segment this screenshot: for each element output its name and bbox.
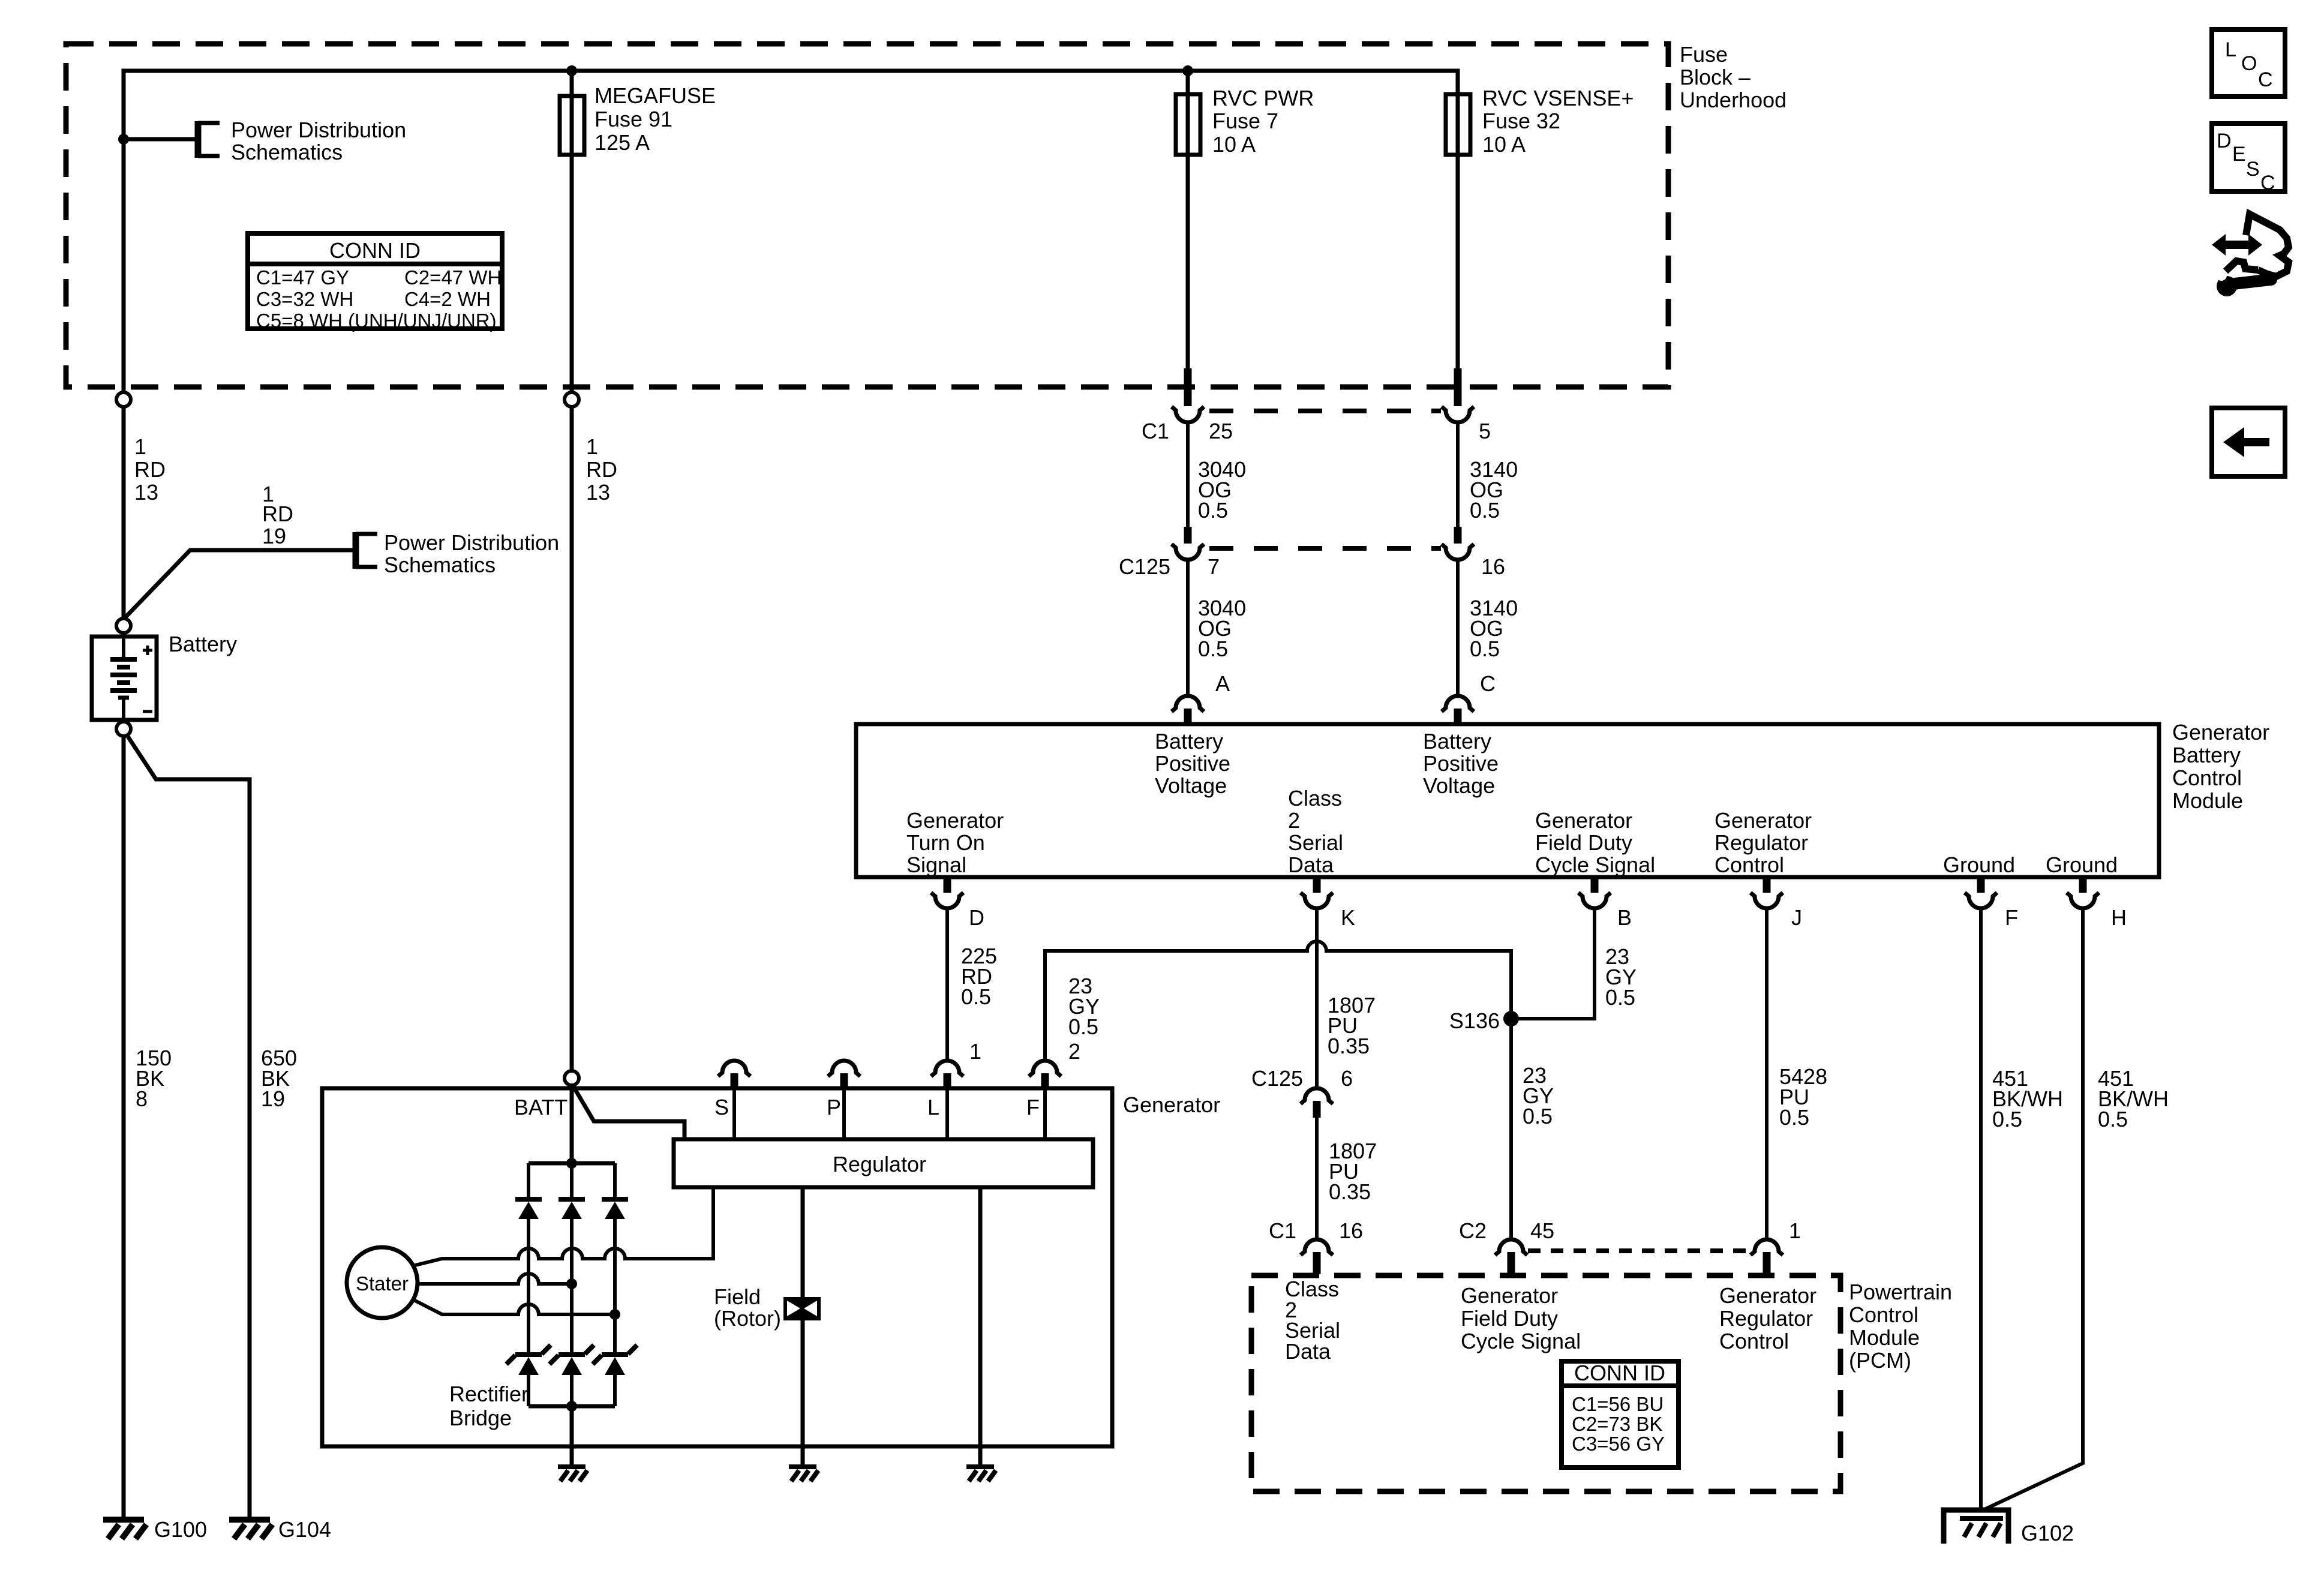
svg-text:C1: C1 (1142, 419, 1169, 443)
svg-text:Battery: Battery (1423, 729, 1491, 754)
svg-text:Power Distribution: Power Distribution (231, 118, 406, 142)
svg-text:Generator: Generator (1461, 1283, 1558, 1308)
svg-text:L: L (2225, 38, 2236, 61)
svg-text:Regulator: Regulator (1719, 1306, 1813, 1331)
svg-text:16: 16 (1339, 1218, 1363, 1243)
svg-text:G104: G104 (278, 1517, 331, 1542)
svg-text:Battery: Battery (2172, 743, 2241, 767)
svg-text:C4=2 WH: C4=2 WH (404, 288, 491, 310)
svg-text:RD: RD (134, 457, 166, 482)
svg-text:Positive: Positive (1155, 751, 1230, 776)
svg-text:13: 13 (134, 480, 158, 505)
svg-text:F: F (2005, 905, 2018, 930)
svg-text:C: C (1480, 671, 1496, 696)
svg-text:S: S (2246, 158, 2260, 181)
svg-text:45: 45 (1530, 1218, 1554, 1243)
svg-text:Generator: Generator (1535, 808, 1632, 833)
svg-text:C1=47 GY: C1=47 GY (256, 266, 349, 289)
svg-text:Generator: Generator (1719, 1283, 1816, 1308)
svg-text:Serial: Serial (1288, 830, 1343, 855)
svg-text:Schematics: Schematics (384, 553, 496, 577)
svg-text:H: H (2111, 905, 2127, 930)
svg-text:Field Duty: Field Duty (1461, 1306, 1558, 1331)
svg-text:Generator: Generator (2172, 720, 2269, 745)
svg-text:0.5: 0.5 (1992, 1107, 2022, 1131)
svg-text:25: 25 (1209, 419, 1233, 443)
svg-text:1: 1 (586, 434, 598, 459)
svg-text:0.5: 0.5 (1470, 637, 1500, 661)
svg-text:0.5: 0.5 (1198, 637, 1228, 661)
svg-text:(Rotor): (Rotor) (714, 1306, 781, 1331)
svg-text:Class: Class (1288, 786, 1342, 810)
svg-text:C2: C2 (1459, 1218, 1487, 1243)
svg-text:125 A: 125 A (594, 130, 650, 155)
svg-text:BATT: BATT (514, 1095, 568, 1119)
svg-text:RVC VSENSE+: RVC VSENSE+ (1482, 86, 1634, 110)
svg-text:10 A: 10 A (1212, 132, 1256, 157)
svg-text:0.5: 0.5 (1198, 498, 1228, 523)
svg-text:Regulator: Regulator (1715, 830, 1808, 855)
svg-text:Data: Data (1285, 1339, 1331, 1364)
svg-text:1: 1 (134, 434, 146, 459)
svg-text:Stater: Stater (356, 1272, 409, 1295)
svg-text:RD: RD (586, 457, 617, 482)
svg-text:Bridge: Bridge (449, 1406, 512, 1430)
svg-text:C: C (2258, 68, 2273, 91)
svg-text:0.5: 0.5 (1779, 1105, 1809, 1130)
svg-text:D: D (969, 905, 984, 930)
svg-text:P: P (827, 1095, 841, 1119)
svg-text:Rectifier: Rectifier (449, 1382, 529, 1406)
svg-text:0.5: 0.5 (1470, 498, 1500, 523)
svg-text:0.5: 0.5 (1523, 1104, 1553, 1128)
svg-text:5: 5 (1479, 419, 1491, 443)
svg-text:7: 7 (1208, 554, 1220, 579)
svg-text:Voltage: Voltage (1155, 773, 1227, 798)
svg-text:Signal: Signal (906, 852, 966, 877)
svg-text:6: 6 (1341, 1066, 1353, 1091)
svg-text:C: C (2260, 172, 2275, 194)
svg-text:Block –: Block – (1680, 65, 1750, 89)
svg-text:0.35: 0.35 (1329, 1179, 1371, 1204)
svg-text:E: E (2232, 143, 2246, 166)
svg-text:Positive: Positive (1423, 751, 1499, 776)
svg-text:1: 1 (969, 1039, 981, 1064)
svg-text:Ground: Ground (2046, 852, 2118, 877)
svg-text:B: B (1617, 905, 1632, 930)
svg-text:Turn On: Turn On (906, 830, 985, 855)
svg-text:Cycle Signal: Cycle Signal (1535, 852, 1655, 877)
svg-text:S136: S136 (1449, 1008, 1500, 1033)
svg-text:Fuse 91: Fuse 91 (594, 107, 672, 131)
svg-text:Fuse 7: Fuse 7 (1212, 109, 1278, 133)
svg-text:Regulator: Regulator (833, 1152, 926, 1176)
svg-text:Battery: Battery (1155, 729, 1223, 754)
svg-text:G102: G102 (2021, 1521, 2074, 1545)
svg-text:C3=32 WH: C3=32 WH (256, 288, 353, 310)
svg-text:C2=47 WH: C2=47 WH (404, 266, 502, 289)
svg-text:1: 1 (1789, 1218, 1801, 1243)
svg-text:Control: Control (2172, 766, 2242, 790)
svg-text:CONN ID: CONN ID (329, 238, 421, 263)
svg-text:CONN ID: CONN ID (1574, 1361, 1665, 1385)
svg-text:Generator: Generator (1715, 808, 1812, 833)
svg-text:13: 13 (586, 480, 610, 505)
svg-text:2: 2 (1288, 808, 1300, 833)
svg-text:0.35: 0.35 (1328, 1034, 1370, 1058)
svg-text:G100: G100 (154, 1517, 207, 1542)
svg-text:10 A: 10 A (1482, 132, 1526, 157)
svg-text:RVC PWR: RVC PWR (1212, 86, 1314, 110)
svg-text:0.5: 0.5 (2098, 1107, 2128, 1131)
svg-text:Underhood: Underhood (1680, 88, 1786, 112)
svg-text:MEGAFUSE: MEGAFUSE (594, 83, 716, 108)
svg-text:C1: C1 (1269, 1218, 1296, 1243)
svg-text:L: L (927, 1095, 939, 1119)
svg-text:C2=73 BK: C2=73 BK (1572, 1413, 1662, 1435)
svg-text:Field: Field (714, 1284, 761, 1309)
svg-text:C125: C125 (1119, 554, 1170, 579)
svg-text:S: S (714, 1095, 729, 1119)
svg-text:C125: C125 (1251, 1066, 1303, 1091)
svg-text:Fuse 32: Fuse 32 (1482, 109, 1560, 133)
svg-text:Module: Module (2172, 788, 2243, 813)
svg-text:D: D (2217, 130, 2232, 152)
svg-text:O: O (2241, 52, 2257, 75)
svg-text:16: 16 (1481, 554, 1505, 579)
svg-text:Ground: Ground (1943, 852, 2015, 877)
svg-text:2: 2 (1068, 1039, 1080, 1064)
svg-text:Control: Control (1719, 1329, 1789, 1353)
svg-text:F: F (1026, 1095, 1040, 1119)
svg-text:Schematics: Schematics (231, 140, 343, 164)
svg-text:19: 19 (262, 524, 286, 548)
svg-text:Generator: Generator (1123, 1092, 1220, 1117)
svg-text:J: J (1791, 905, 1802, 930)
svg-text:C5=8 WH (UNH/UNJ/UNR): C5=8 WH (UNH/UNJ/UNR) (256, 310, 497, 332)
svg-text:Generator: Generator (906, 808, 1004, 833)
svg-text:0.5: 0.5 (1605, 985, 1635, 1010)
svg-text:Powertrain: Powertrain (1849, 1280, 1952, 1304)
svg-text:(PCM): (PCM) (1849, 1348, 1911, 1373)
svg-text:Battery: Battery (169, 632, 237, 656)
svg-text:Field Duty: Field Duty (1535, 830, 1632, 855)
svg-text:Cycle Signal: Cycle Signal (1461, 1329, 1581, 1353)
svg-text:19: 19 (261, 1086, 285, 1111)
svg-text:C1=56 BU: C1=56 BU (1572, 1393, 1664, 1415)
svg-text:Voltage: Voltage (1423, 773, 1495, 798)
svg-text:A: A (1215, 671, 1230, 696)
svg-text:K: K (1341, 905, 1355, 930)
svg-text:8: 8 (136, 1086, 148, 1111)
svg-text:Module: Module (1849, 1325, 1920, 1350)
svg-text:0.5: 0.5 (1068, 1014, 1098, 1039)
svg-text:Control: Control (1849, 1302, 1918, 1327)
svg-text:C3=56 GY: C3=56 GY (1572, 1433, 1665, 1455)
svg-text:Fuse: Fuse (1680, 42, 1728, 67)
svg-text:Power Distribution: Power Distribution (384, 530, 559, 555)
svg-text:Data: Data (1288, 852, 1334, 877)
svg-text:RD: RD (262, 502, 293, 526)
svg-text:Control: Control (1715, 852, 1784, 877)
svg-text:0.5: 0.5 (961, 984, 991, 1009)
